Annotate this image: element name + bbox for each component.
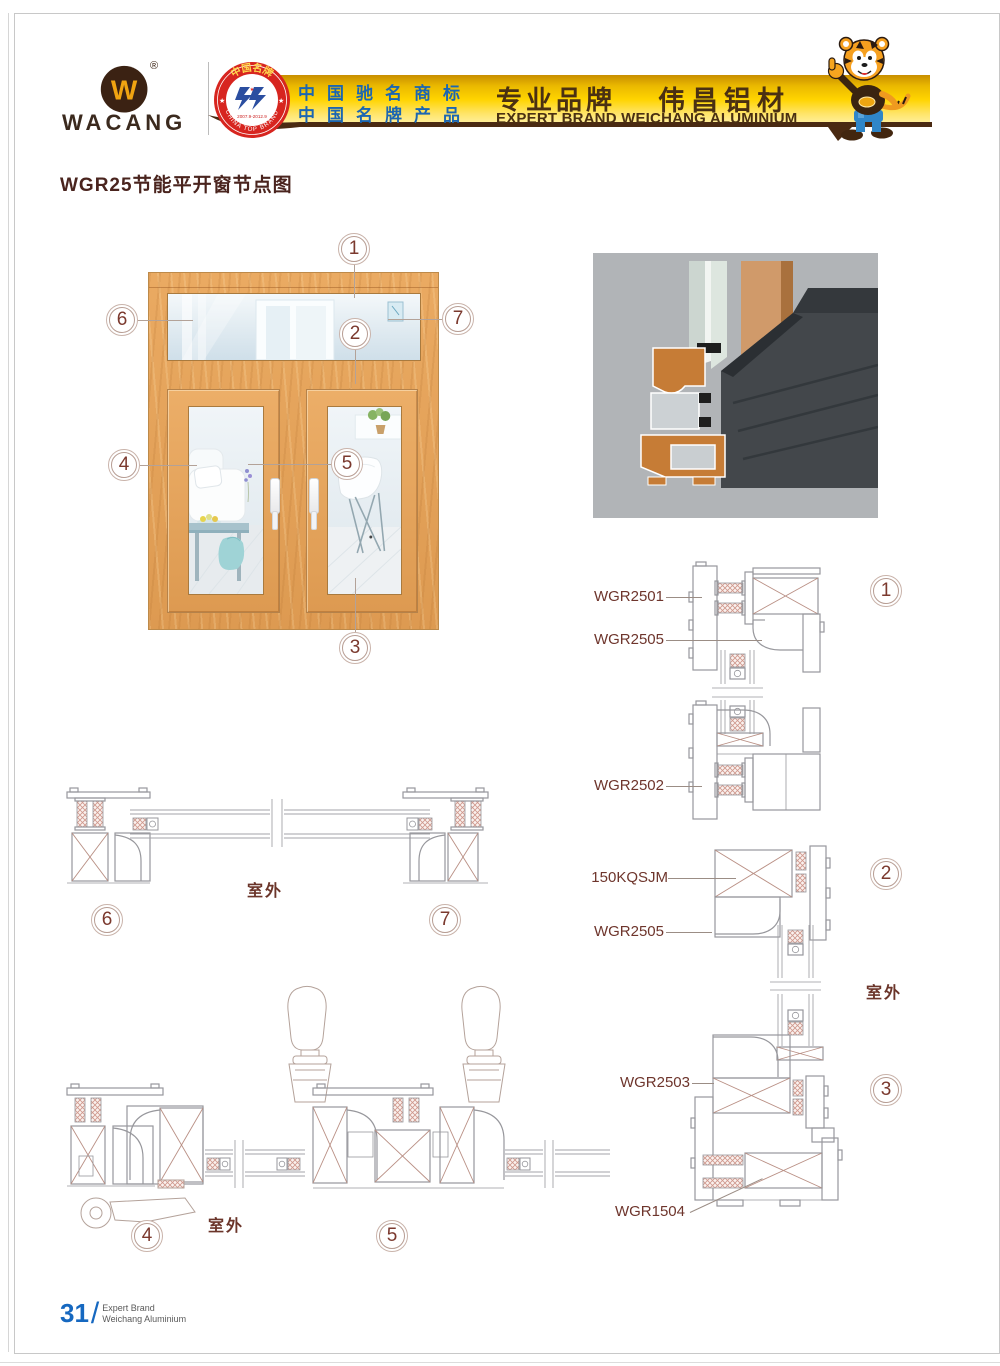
horizontal-section-4-5 bbox=[55, 980, 625, 1230]
profile-label-wgr2502: WGR2502 bbox=[544, 777, 664, 795]
outdoor-label-45: 室外 bbox=[208, 1212, 244, 1236]
callout-6: 6 bbox=[106, 304, 138, 336]
living-room-scene-left bbox=[189, 407, 263, 594]
section-circle-5: 5 bbox=[376, 1220, 408, 1252]
tiger-mascot-icon bbox=[818, 36, 914, 142]
profile-label-wgr2501: WGR2501 bbox=[544, 588, 664, 606]
callout-4: 4 bbox=[108, 449, 140, 481]
leader-line bbox=[248, 464, 331, 465]
section-circle-4: 4 bbox=[131, 1220, 163, 1252]
callout-5: 5 bbox=[331, 448, 363, 480]
outdoor-label-67: 室外 bbox=[247, 877, 283, 901]
svg-text:★: ★ bbox=[250, 87, 255, 93]
page-edge-line bbox=[8, 13, 9, 1352]
leader-line bbox=[140, 465, 197, 466]
outdoor-label-right: 室外 bbox=[852, 979, 916, 1003]
leader-line bbox=[355, 578, 356, 632]
callout-2: 2 bbox=[339, 318, 371, 350]
catalog-page: W ® WACANG 中国名牌 CHINA TOP BRAND ★ bbox=[0, 0, 1000, 1366]
transom-scene bbox=[168, 294, 420, 360]
window-handle-right bbox=[309, 478, 319, 514]
page-title: WGR25节能平开窗节点图 bbox=[60, 170, 293, 197]
living-room-scene-right bbox=[328, 407, 401, 594]
transom-glass bbox=[167, 293, 421, 361]
casement-sash-left bbox=[167, 389, 280, 613]
footer-brand-text: Expert Brand Weichang Aluminium bbox=[102, 1300, 186, 1325]
badge-years: 2007.9-2012.9 bbox=[237, 114, 267, 119]
label-leader-line bbox=[692, 1083, 714, 1084]
detail-circle-1: 1 bbox=[870, 575, 902, 607]
detail-circle-2: 2 bbox=[870, 858, 902, 890]
detail-3-sill-section bbox=[691, 1035, 842, 1206]
banner-slogan-en: EXPERT BRAND WEICHANG ALUMINIUM bbox=[496, 110, 797, 127]
label-leader-line bbox=[666, 640, 762, 641]
hinge bbox=[81, 1180, 195, 1228]
glass-unit-1 bbox=[712, 650, 763, 746]
window-handle-section bbox=[288, 987, 505, 1103]
profile-3d-render bbox=[593, 253, 878, 518]
sash-glass-right bbox=[327, 406, 402, 595]
leader-line bbox=[355, 350, 356, 384]
glass-unit-2 bbox=[770, 925, 823, 1060]
detail-2-transom-section bbox=[689, 701, 830, 940]
brand-wordmark: WACANG bbox=[62, 110, 192, 136]
section-circle-7: 7 bbox=[429, 904, 461, 936]
section-circle-6: 6 bbox=[91, 904, 123, 936]
page-bottom-line bbox=[0, 1362, 1000, 1363]
china-top-brand-badge: 中国名牌 CHINA TOP BRAND ★ ★ ★ 2007.9-2012.9 bbox=[212, 60, 292, 140]
label-leader-line bbox=[666, 932, 712, 933]
svg-text:W: W bbox=[111, 74, 138, 105]
leader-line bbox=[138, 320, 193, 321]
casement-sash-right bbox=[306, 389, 418, 613]
label-leader-line bbox=[666, 597, 702, 598]
callout-1: 1 bbox=[338, 233, 370, 265]
callout-3: 3 bbox=[339, 632, 371, 664]
profile-label-wgr2505: WGR2505 bbox=[544, 631, 664, 649]
profile-label-150kqsjm: 150KQSJM bbox=[548, 869, 668, 887]
footer-line2: Weichang Aluminium bbox=[102, 1314, 186, 1324]
leader-line bbox=[388, 319, 442, 320]
label-leader-line bbox=[666, 786, 702, 787]
svg-text:★: ★ bbox=[278, 97, 284, 105]
detail-1-head-section bbox=[689, 562, 824, 672]
page-number: 31 bbox=[60, 1300, 89, 1326]
callout-7: 7 bbox=[442, 303, 474, 335]
banner-honor-line2: 中国名牌产品 bbox=[298, 101, 472, 126]
label-leader-line bbox=[668, 878, 736, 879]
vertical-section-drawing: .s{fill:none;stroke:#97979c;stroke-width… bbox=[660, 558, 860, 1248]
sash-glass-left bbox=[188, 406, 264, 595]
frame-groove bbox=[149, 287, 438, 288]
svg-text:★: ★ bbox=[219, 97, 225, 105]
window-handle-left bbox=[270, 478, 280, 514]
page-number-slash: / bbox=[91, 1300, 99, 1328]
page-footer: 31 / Expert Brand Weichang Aluminium bbox=[60, 1300, 186, 1328]
window-illustration bbox=[148, 272, 439, 630]
detail-circle-3: 3 bbox=[870, 1074, 902, 1106]
footer-line1: Expert Brand bbox=[102, 1303, 155, 1313]
registered-mark: ® bbox=[150, 60, 158, 72]
leader-line bbox=[354, 265, 355, 298]
profile-label-wgr2505-2: WGR2505 bbox=[544, 923, 664, 941]
